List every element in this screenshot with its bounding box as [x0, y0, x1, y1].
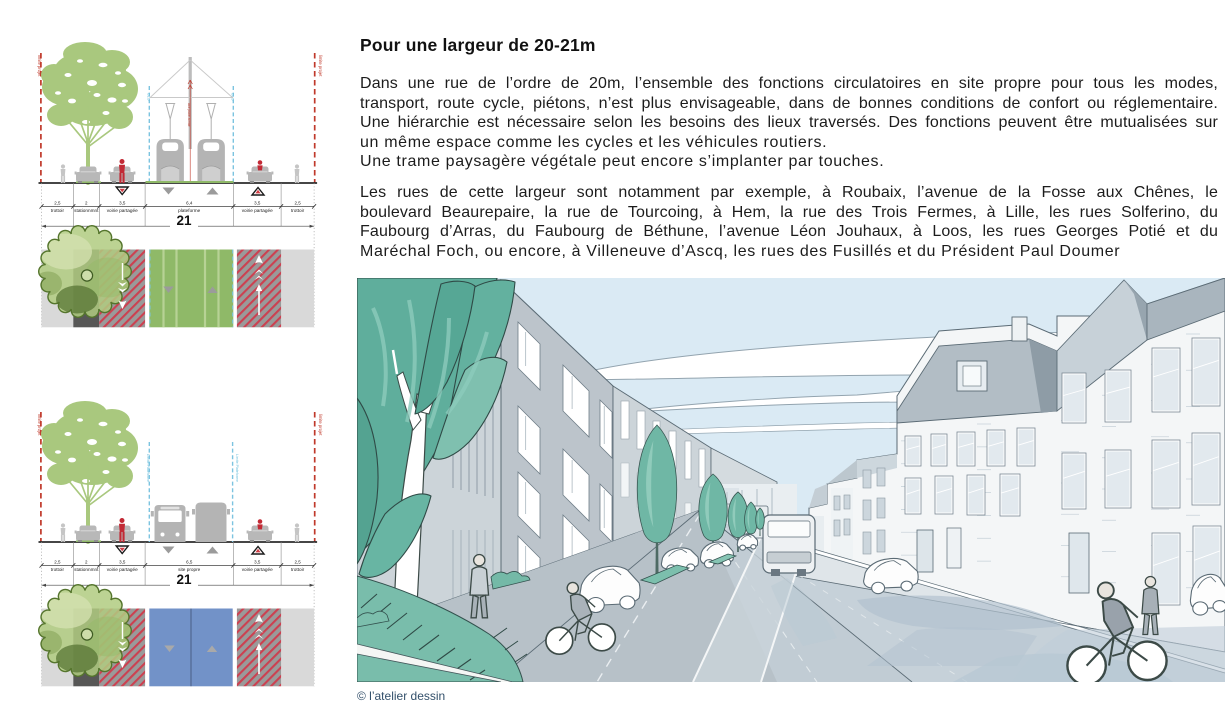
svg-text:3,5: 3,5 — [119, 560, 126, 565]
svg-text:voirie partagée: voirie partagée — [242, 567, 273, 572]
svg-text:limite projet: limite projet — [318, 414, 323, 436]
svg-text:voirie partagée: voirie partagée — [107, 208, 138, 213]
svg-text:2,5: 2,5 — [294, 560, 301, 565]
svg-text:trottoir: trottoir — [51, 567, 65, 572]
svg-text:2: 2 — [85, 560, 88, 565]
svg-text:trottoir: trottoir — [291, 567, 305, 572]
svg-text:axe plate-forme: axe plate-forme — [187, 103, 191, 127]
svg-text:2,5: 2,5 — [294, 201, 301, 206]
svg-text:6,4: 6,4 — [186, 201, 193, 206]
svg-text:trottoir: trottoir — [291, 208, 305, 213]
svg-text:3,5: 3,5 — [119, 201, 126, 206]
svg-text:stationnmnt: stationnmnt — [74, 208, 99, 213]
svg-text:2: 2 — [85, 201, 88, 206]
svg-text:6,5: 6,5 — [186, 560, 193, 565]
svg-text:voirie partagée: voirie partagée — [107, 567, 138, 572]
svg-text:2,5: 2,5 — [54, 560, 61, 565]
svg-text:stationnmnt: stationnmnt — [74, 567, 99, 572]
svg-text:trottoir: trottoir — [51, 208, 65, 213]
svg-text:3,5: 3,5 — [254, 560, 261, 565]
svg-text:limite projet: limite projet — [318, 55, 323, 77]
svg-text:3,5: 3,5 — [254, 201, 261, 206]
svg-text:voirie partagée: voirie partagée — [242, 208, 273, 213]
svg-text:GLO: GLO — [147, 93, 151, 101]
svg-text:Limite Plateforme: Limite Plateforme — [235, 454, 239, 482]
svg-text:21: 21 — [176, 572, 192, 587]
svg-text:21: 21 — [176, 213, 192, 228]
svg-text:Limite Plateforme: Limite Plateforme — [146, 454, 150, 482]
svg-text:2,5: 2,5 — [54, 201, 61, 206]
